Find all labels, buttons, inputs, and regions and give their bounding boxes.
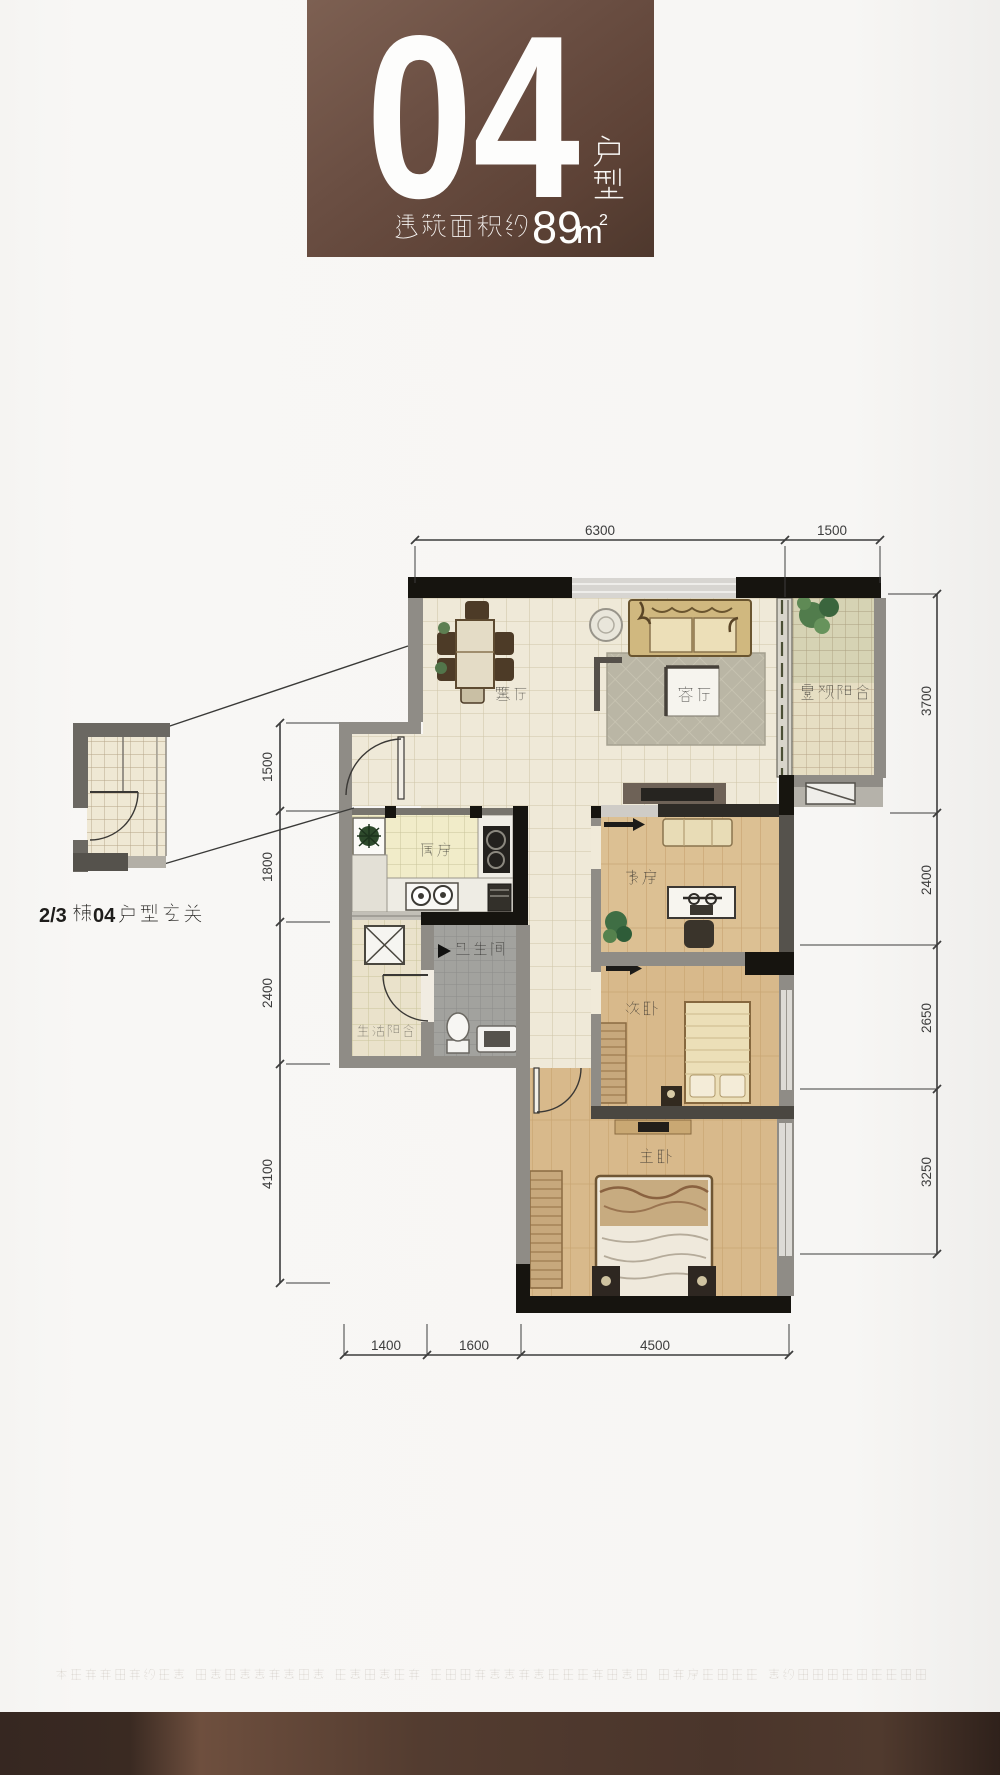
svg-text:1400: 1400: [371, 1338, 401, 1353]
svg-text:1500: 1500: [260, 752, 275, 782]
svg-text:2400: 2400: [919, 865, 934, 895]
svg-text:6300: 6300: [585, 523, 615, 538]
svg-text:4100: 4100: [260, 1159, 275, 1189]
svg-text:3250: 3250: [919, 1157, 934, 1187]
svg-text:2650: 2650: [919, 1003, 934, 1033]
svg-text:04: 04: [93, 905, 116, 927]
svg-text:1800: 1800: [260, 852, 275, 882]
svg-text:2: 2: [599, 212, 608, 229]
svg-text:1500: 1500: [817, 523, 847, 538]
svg-text:2/3: 2/3: [39, 905, 67, 927]
svg-text:89: 89: [532, 202, 582, 253]
svg-text:2400: 2400: [260, 978, 275, 1008]
svg-text:4500: 4500: [640, 1338, 670, 1353]
svg-text:1600: 1600: [459, 1338, 489, 1353]
svg-text:3700: 3700: [919, 686, 934, 716]
